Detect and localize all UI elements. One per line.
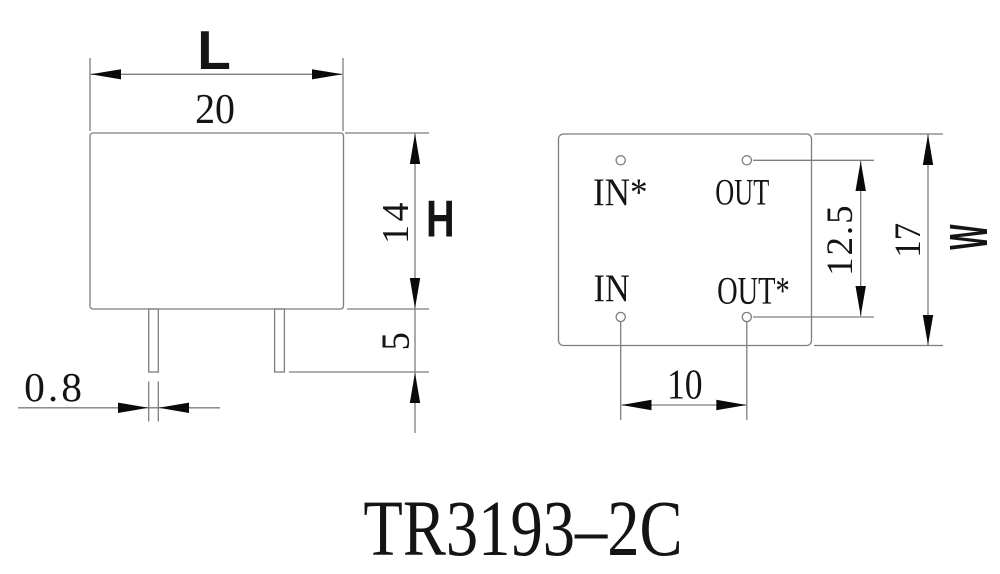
svg-text:OUT*: OUT* [717,269,790,313]
svg-text:W: W [939,224,998,249]
svg-text:IN: IN [593,267,629,311]
svg-text:H: H [426,189,455,247]
svg-text:5: 5 [374,332,418,350]
svg-text:12.5: 12.5 [820,204,861,276]
svg-text:17: 17 [887,223,928,258]
svg-text:14: 14 [375,199,417,244]
svg-text:TR3193–2C: TR3193–2C [363,484,682,573]
svg-text:0.8: 0.8 [24,364,85,410]
svg-text:L: L [197,19,231,81]
svg-text:20: 20 [195,85,235,132]
svg-text:OUT: OUT [715,171,769,213]
svg-text:10: 10 [667,362,703,408]
svg-text:IN*: IN* [593,171,648,214]
